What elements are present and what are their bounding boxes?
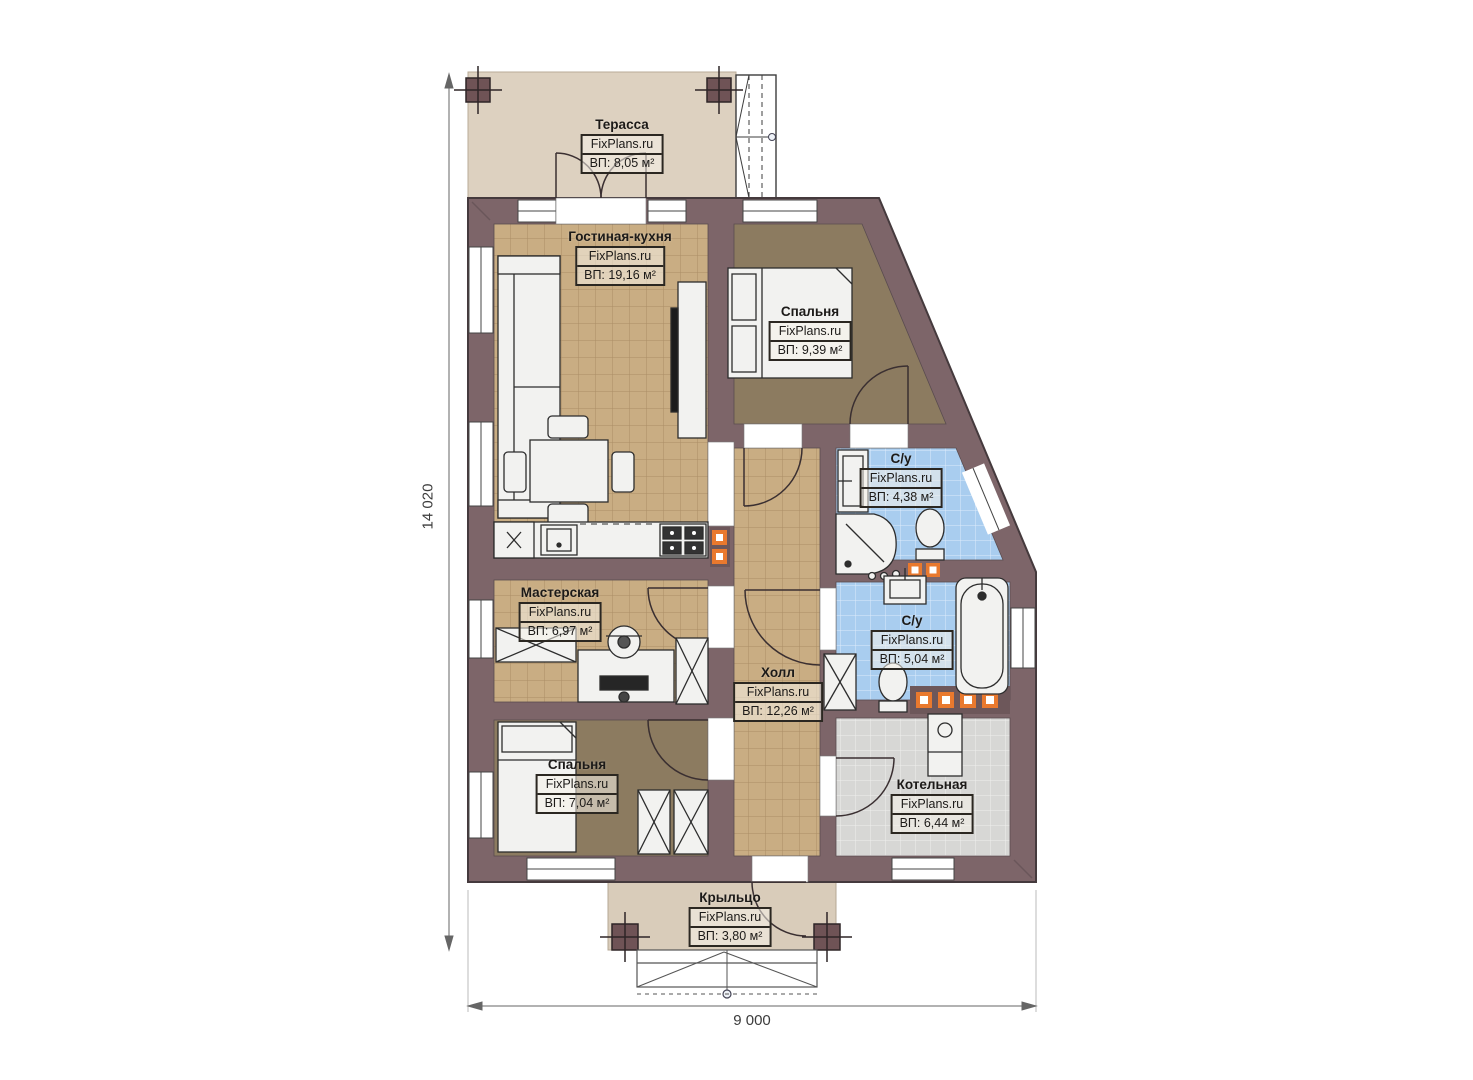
opening-workshop	[708, 586, 734, 648]
floor-plan-canvas: Терасса FixPlans.ru ВП: 8,05 м² Гостиная…	[0, 0, 1473, 1080]
opening-terrace-door	[556, 198, 646, 224]
room-info-box: FixPlans.ru ВП: 3,80 м²	[689, 907, 772, 947]
window-left-1	[469, 247, 493, 333]
bathtub	[956, 578, 1008, 694]
kitchen-counter	[494, 522, 708, 558]
window-left-3	[469, 600, 493, 658]
terrace-stairs	[736, 75, 776, 198]
brand-text: FixPlans.ru	[873, 632, 952, 651]
area-text: ВП: 3,80 м²	[691, 928, 770, 945]
window-left-2	[469, 422, 493, 506]
stove	[660, 524, 706, 556]
window-bedroom1	[743, 200, 817, 222]
porch-steps	[637, 950, 817, 998]
room-name: С/у	[871, 614, 954, 628]
room-info-box: FixPlans.ru ВП: 7,04 м²	[536, 774, 619, 814]
brand-text: FixPlans.ru	[862, 470, 941, 489]
brand-text: FixPlans.ru	[583, 136, 662, 155]
window-left-4	[469, 772, 493, 838]
brand-text: FixPlans.ru	[771, 323, 850, 342]
label-living-kitchen: Гостиная-кухня FixPlans.ru ВП: 19,16 м²	[568, 230, 671, 286]
room-name: Терасса	[581, 118, 664, 132]
label-bedroom2: Спальня FixPlans.ru ВП: 7,04 м²	[536, 758, 619, 814]
area-text: ВП: 19,16 м²	[577, 267, 663, 284]
opening-boiler	[820, 756, 836, 816]
toilet-bathroom2	[879, 663, 907, 712]
room-info-box: FixPlans.ru ВП: 5,04 м²	[871, 630, 954, 670]
window-top-1	[518, 200, 556, 222]
opening-bedroom1	[744, 424, 802, 448]
window-bottom-boiler	[892, 858, 954, 880]
room-name: Мастерская	[519, 586, 602, 600]
vent-shaft	[824, 654, 856, 710]
label-bathroom2: С/у FixPlans.ru ВП: 5,04 м²	[871, 614, 954, 670]
room-name: Гостиная-кухня	[568, 230, 671, 244]
window-top-2	[648, 200, 686, 222]
label-boiler: Котельная FixPlans.ru ВП: 6,44 м²	[891, 778, 974, 834]
area-text: ВП: 4,38 м²	[862, 489, 941, 506]
label-hall: Холл FixPlans.ru ВП: 12,26 м²	[733, 666, 823, 722]
brand-text: FixPlans.ru	[577, 248, 663, 267]
opening-bathroom1	[850, 424, 908, 448]
brand-text: FixPlans.ru	[893, 796, 972, 815]
brand-text: FixPlans.ru	[691, 909, 770, 928]
brand-text: FixPlans.ru	[521, 604, 600, 623]
room-name: С/у	[860, 452, 943, 466]
room-info-box: FixPlans.ru ВП: 8,05 м²	[581, 134, 664, 174]
area-text: ВП: 8,05 м²	[583, 155, 662, 172]
label-terrace: Терасса FixPlans.ru ВП: 8,05 м²	[581, 118, 664, 174]
label-bathroom1: С/у FixPlans.ru ВП: 4,38 м²	[860, 452, 943, 508]
room-name: Спальня	[769, 305, 852, 319]
area-text: ВП: 9,39 м²	[771, 342, 850, 359]
toilet-bathroom1	[916, 509, 944, 560]
kitchen-sink	[541, 525, 577, 555]
label-workshop: Мастерская FixPlans.ru ВП: 6,97 м²	[519, 586, 602, 642]
room-info-box: FixPlans.ru ВП: 19,16 м²	[575, 246, 665, 286]
room-name: Крыльцо	[689, 891, 772, 905]
area-text: ВП: 5,04 м²	[873, 651, 952, 668]
area-text: ВП: 7,04 м²	[538, 795, 617, 812]
radiator-hall	[710, 527, 730, 567]
room-info-box: FixPlans.ru ВП: 6,44 м²	[891, 794, 974, 834]
room-info-box: FixPlans.ru ВП: 12,26 м²	[733, 682, 823, 722]
opening-living-hall	[708, 442, 734, 526]
opening-bedroom2	[708, 718, 734, 780]
area-text: ВП: 12,26 м²	[735, 703, 821, 720]
room-name: Спальня	[536, 758, 619, 772]
opening-front-door	[752, 856, 808, 882]
dimension-width-label: 9 000	[733, 1012, 771, 1029]
window-right-1	[1011, 608, 1035, 668]
label-bedroom1: Спальня FixPlans.ru ВП: 9,39 м²	[769, 305, 852, 361]
label-porch: Крыльцо FixPlans.ru ВП: 3,80 м²	[689, 891, 772, 947]
brand-text: FixPlans.ru	[538, 776, 617, 795]
opening-bathroom2	[820, 588, 836, 650]
brand-text: FixPlans.ru	[735, 684, 821, 703]
boiler-unit	[928, 714, 962, 776]
workshop-wardrobe	[676, 638, 708, 704]
room-name: Котельная	[891, 778, 974, 792]
dimension-height-label: 14 020	[419, 484, 436, 530]
room-info-box: FixPlans.ru ВП: 9,39 м²	[769, 321, 852, 361]
area-text: ВП: 6,97 м²	[521, 623, 600, 640]
room-info-box: FixPlans.ru ВП: 4,38 м²	[860, 468, 943, 508]
area-text: ВП: 6,44 м²	[893, 815, 972, 832]
window-bottom-bedroom2	[527, 858, 615, 880]
room-name: Холл	[733, 666, 823, 680]
room-info-box: FixPlans.ru ВП: 6,97 м²	[519, 602, 602, 642]
